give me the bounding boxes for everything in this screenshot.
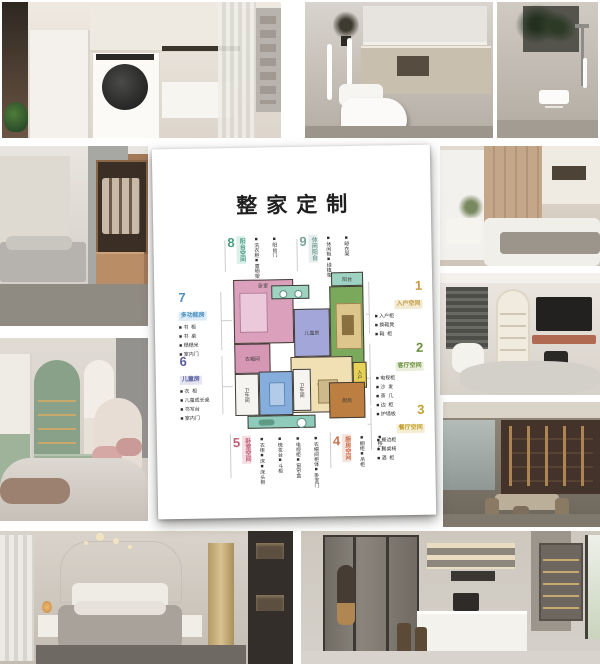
- zone-label: 客厅空间: [396, 362, 424, 371]
- zone-item: ■吊柜: [358, 451, 365, 467]
- room-balcony-bottom: [247, 415, 315, 429]
- zone-item: ■床头柜: [259, 464, 266, 485]
- zone-label: 阳台空间: [237, 236, 246, 264]
- bright-ceiling: [443, 402, 600, 418]
- connector-line: [224, 240, 226, 272]
- photo-accessible-bathroom: [305, 2, 493, 138]
- zone-balcony-space: 8 阳台空间 ■洗衣柜■置物架■阳台门: [227, 235, 284, 283]
- blind-window: [446, 287, 488, 349]
- zone-multifunction-room: 7 多功能房 ■ 书 柜■ 书 桌■ 榻榻米■ 室内门: [178, 290, 231, 360]
- photo-kitchen-island: [301, 531, 600, 664]
- tv-screen: [536, 297, 592, 331]
- zone-leisure-balcony: 9 休闲阳台 ■休闲柜■绿植架■晾衣架: [299, 234, 356, 282]
- grab-bar: [583, 58, 587, 88]
- photo-living-room-tv: [440, 273, 600, 395]
- zone-items: ■ 衣 柜■ 儿童成长桌■ 书写台■ 室内门: [180, 387, 233, 424]
- zone-item: ■衣帽间柜体: [312, 436, 319, 467]
- island-counter: [417, 611, 527, 651]
- zone-entry-space: 1 入户空间 ■ 入户柜■ 换鞋凳■ 鞋 柜: [358, 279, 423, 340]
- bed-glyph: [239, 292, 268, 332]
- zone-number: 6: [179, 354, 231, 368]
- desk-glyph: [269, 382, 285, 406]
- bedroom-rug: [36, 645, 246, 664]
- photo-master-bedroom: [0, 531, 293, 664]
- photo-laundry-room: [2, 2, 281, 138]
- zone-item: ■ 鞋 柜: [375, 330, 423, 340]
- towel-niche: [397, 56, 429, 76]
- bedroom-floor: [0, 284, 148, 326]
- bed-pillows: [6, 236, 72, 250]
- table-glyph: [342, 315, 354, 335]
- range-hood: [451, 571, 495, 581]
- zone-item: ■梳妆台: [276, 436, 283, 457]
- room-label: 卧室: [258, 282, 268, 289]
- gold-shelves: [38, 388, 76, 448]
- photo-shower-room: [497, 2, 598, 138]
- bedside-lamp-glow: [42, 601, 52, 613]
- lit-shelf-row: [427, 543, 515, 569]
- zone-item: ■卧室门: [313, 467, 320, 488]
- zone-number: 4: [333, 434, 340, 447]
- teddy-bear-decor: [4, 102, 28, 132]
- zone-number: 9: [299, 235, 306, 248]
- zone-item: ■电视柜: [294, 436, 301, 457]
- zone-items: ■衣柜■床■床头柜■梳妆台■斗柜■电视柜■窗帘盒■衣帽间柜体■卧室门: [253, 435, 326, 488]
- bookcase-shelves: [500, 303, 526, 365]
- wardrobe-lit-niche-1: [256, 543, 284, 559]
- connector-line: [230, 434, 232, 478]
- lit-shelves: [509, 426, 593, 486]
- zone-label: 卧室空间: [242, 436, 251, 464]
- room-bathroom-2: 卫生间: [293, 369, 312, 411]
- nightstand-left: [38, 615, 58, 637]
- photo-tatami-bedroom: [440, 146, 600, 266]
- room-label: 衣帽间: [245, 355, 260, 362]
- rug: [460, 361, 600, 395]
- chandelier: [96, 533, 104, 541]
- zone-item: ■衣柜: [258, 437, 265, 453]
- basin-glyph: [279, 290, 287, 298]
- shower-head: [575, 24, 589, 28]
- floor-plan: 卧室 衣帽间 儿童房 阳台 客厅 餐厅 入户 卫生间: [231, 270, 368, 430]
- zone-item: ■绿植架: [325, 256, 332, 277]
- plant-glyph: [259, 419, 275, 425]
- zone-item: ■阳台门: [271, 236, 278, 257]
- room-label: 卫生间: [243, 387, 250, 402]
- bed-pillow-row: [74, 601, 166, 615]
- zone-label: 入户空间: [394, 300, 422, 309]
- nightstand-right: [182, 615, 202, 637]
- zone-kids-room: 6 儿童房 ■ 衣 柜■ 儿童成长桌■ 书写台■ 室内门: [179, 354, 232, 424]
- photo-dining-room-wood: [443, 402, 600, 527]
- window-city: [443, 420, 495, 490]
- shower-floor: [497, 120, 598, 138]
- room-label: 卫生间: [298, 382, 305, 397]
- dark-niche: [552, 166, 586, 180]
- room-kids: 儿童房: [294, 308, 331, 357]
- hanging-clothes: [102, 178, 140, 234]
- zone-label: 厨房空间: [342, 434, 351, 462]
- wardrobe-gold-shelves: [543, 549, 579, 613]
- wardrobe-drawers: [96, 252, 144, 284]
- white-door-panel: [30, 30, 90, 138]
- window-plant: [458, 194, 484, 220]
- blanket-fringe: [0, 478, 70, 504]
- zone-item: ■橱柜: [358, 435, 365, 451]
- zone-item: ■床: [258, 453, 265, 464]
- person-skirt: [337, 603, 355, 625]
- zone-label: 休闲阳台: [309, 235, 318, 263]
- zone-bedroom-space: 5 卧室空间 ■衣柜■床■床头柜■梳妆台■斗柜■电视柜■窗帘盒■衣帽间柜体■卧室…: [233, 434, 326, 489]
- zone-number: 5: [233, 436, 240, 449]
- poster-title: 整家定制: [153, 187, 431, 222]
- room-laundry-strip: [271, 285, 309, 300]
- photo-wardrobe-bedroom: [0, 146, 148, 326]
- zone-item: ■移门: [376, 434, 383, 450]
- zone-number: 1: [358, 279, 422, 293]
- zone-number: 8: [227, 236, 234, 249]
- dining-floor: [443, 514, 600, 527]
- room-closet: 衣帽间: [234, 343, 271, 374]
- zone-number: 7: [178, 290, 230, 304]
- window-sofa: [446, 218, 482, 244]
- grey-throw: [500, 232, 600, 254]
- zone-item: ■窗帘盒: [295, 457, 302, 478]
- room-label: 儿童房: [304, 329, 319, 336]
- bath-floor: [305, 126, 493, 138]
- washer-control-strip: [96, 54, 154, 60]
- zone-kitchen-space: 4 厨房空间 ■橱柜■吊柜■移门: [333, 433, 390, 481]
- kitchen-floor: [301, 651, 600, 664]
- custom-home-poster: 整家定制 卧室 衣帽间 儿童房 阳台 客厅: [152, 145, 436, 520]
- room-bathroom-1: 卫生间: [235, 374, 260, 416]
- zone-label: 儿童房: [180, 376, 202, 385]
- zone-item: ■洗衣柜: [253, 237, 260, 258]
- sheer-curtain: [218, 2, 256, 138]
- zone-items: ■休闲柜■绿植架■晾衣架: [319, 235, 356, 282]
- ceiling-strip: [440, 273, 600, 283]
- mirror-cabinet: [363, 6, 487, 45]
- zone-number: 3: [360, 403, 424, 417]
- zone-items: ■洗衣柜■置物架■阳台门: [247, 236, 284, 283]
- window-garden: [585, 535, 600, 639]
- zone-label: 餐厅空间: [397, 424, 425, 433]
- room-label: 厨房: [342, 396, 352, 403]
- zone-item: ■斗柜: [277, 457, 284, 473]
- zone-items: ■橱柜■吊柜■移门: [353, 434, 390, 481]
- wood-slat-wall: [484, 146, 542, 224]
- basin-glyph: [294, 290, 302, 298]
- pink-pillow-2: [116, 438, 142, 456]
- shower-stool: [539, 90, 569, 104]
- sheer-curtain-left: [0, 535, 34, 661]
- wardrobe-lit-niche-2: [256, 595, 284, 611]
- zone-item: ■置物架: [253, 258, 260, 279]
- tv-bench: [532, 335, 596, 344]
- zone-item: ■ 室内门: [180, 414, 232, 424]
- zone-number: 2: [359, 341, 423, 355]
- connector-line: [296, 239, 298, 271]
- grab-bar-left: [327, 44, 332, 100]
- zone-item: ■晾衣架: [343, 235, 350, 256]
- building-silhouette: [260, 16, 276, 104]
- washer-drum: [102, 64, 148, 110]
- plant-glyph: [297, 418, 307, 428]
- photo-kids-room: [0, 338, 148, 521]
- coffee-machine: [453, 593, 479, 611]
- gold-mirror-column: [208, 543, 234, 647]
- room-study: 书房: [259, 371, 294, 416]
- zone-label: 多功能房: [179, 312, 207, 321]
- zone-items: ■ 入户柜■ 换鞋凳■ 鞋 柜: [359, 312, 423, 340]
- connector-line: [330, 432, 332, 468]
- zone-item: ■休闲柜: [325, 235, 332, 256]
